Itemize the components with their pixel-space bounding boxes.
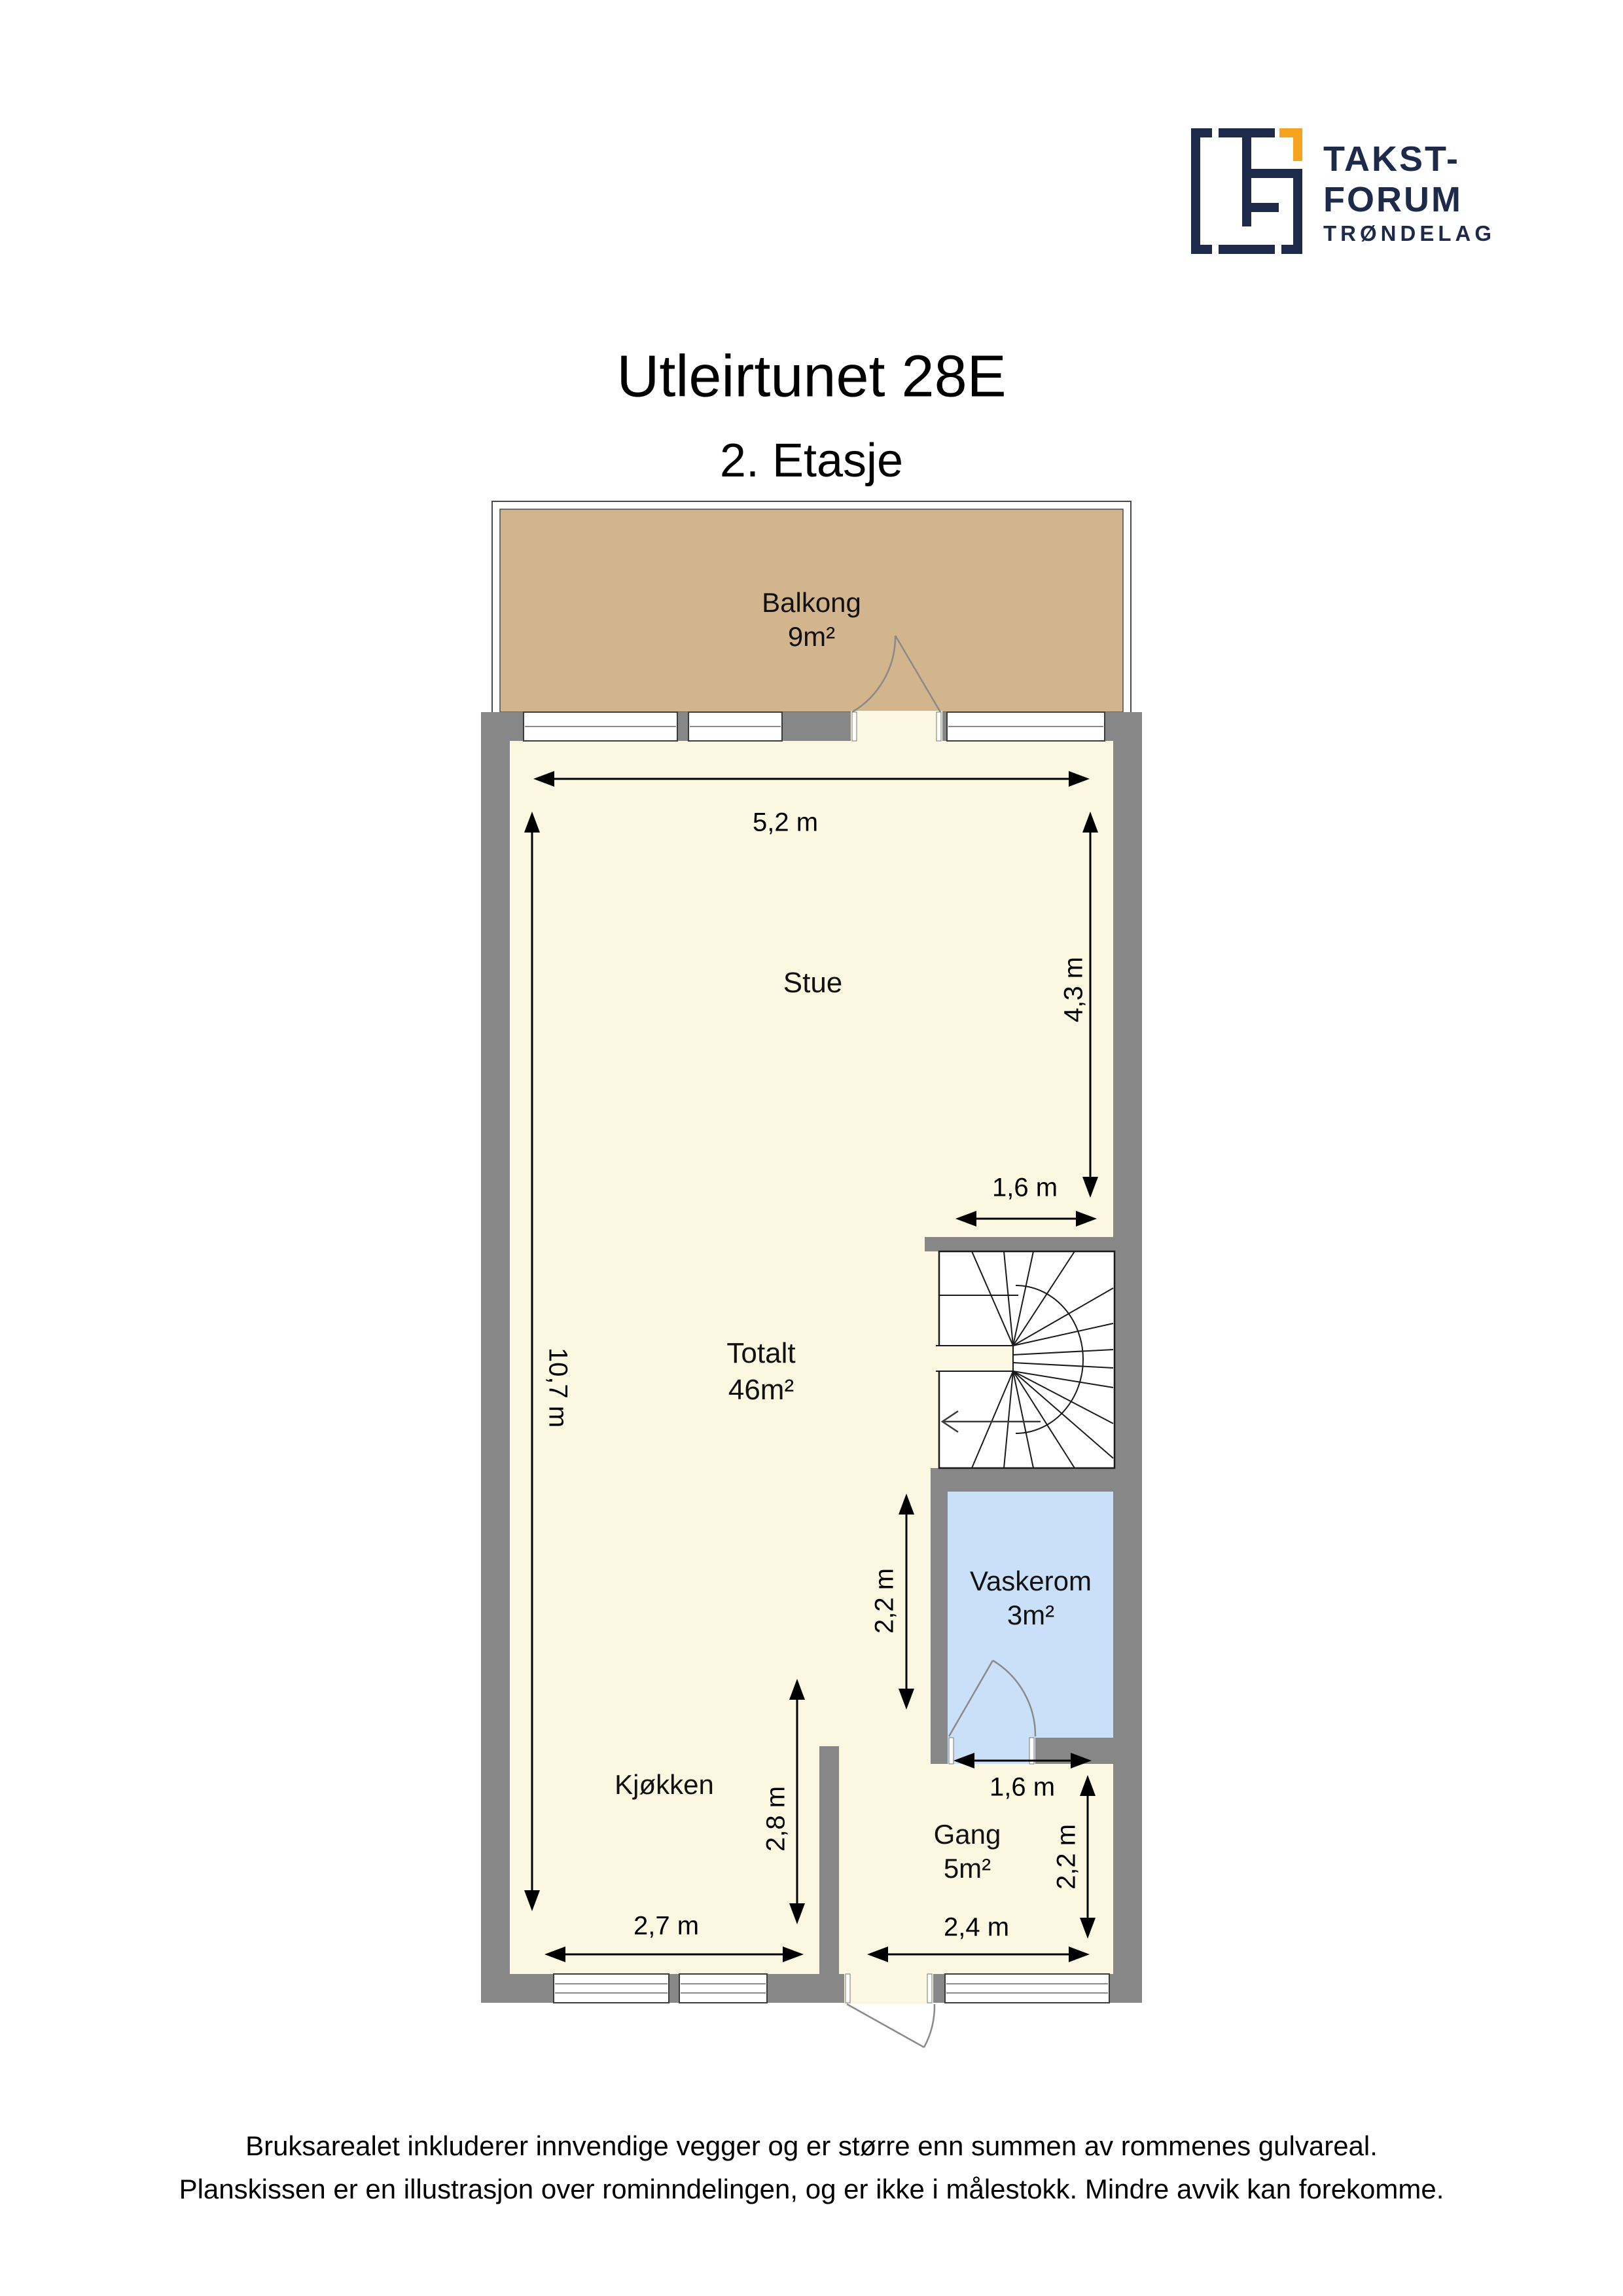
taktsforum-logo-icon bbox=[0, 0, 1623, 2296]
floorplan-page: TAKST- FORUM TRØNDELAG Utleirtunet 28E 2… bbox=[0, 0, 1623, 2296]
